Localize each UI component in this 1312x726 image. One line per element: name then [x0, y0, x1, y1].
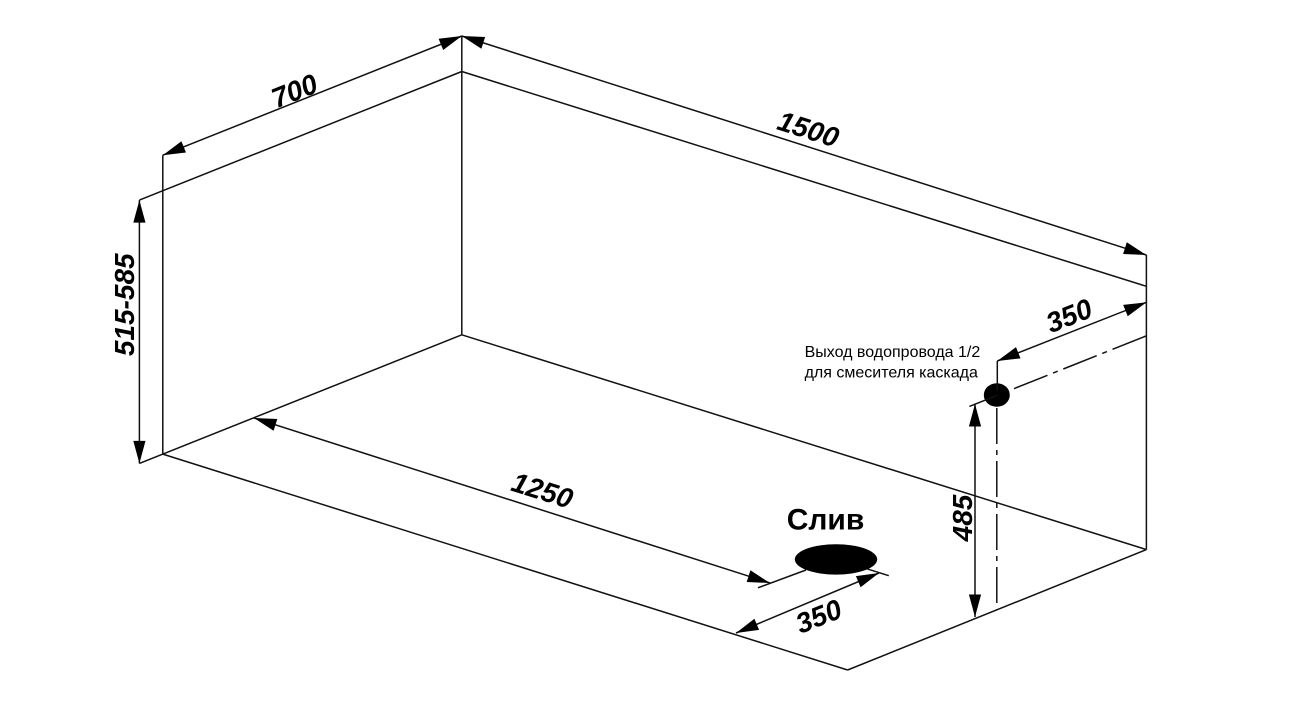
svg-text:для смесителя каскада: для смесителя каскада [805, 364, 978, 381]
svg-text:700: 700 [267, 68, 322, 114]
svg-text:1250: 1250 [508, 466, 577, 514]
svg-text:Слив: Слив [787, 503, 865, 536]
svg-text:350: 350 [1042, 293, 1097, 339]
svg-text:515-585: 515-585 [109, 253, 140, 356]
svg-text:Выход водопровода 1/2: Выход водопровода 1/2 [805, 344, 981, 361]
svg-text:350: 350 [791, 593, 846, 639]
svg-text:485: 485 [947, 494, 978, 542]
